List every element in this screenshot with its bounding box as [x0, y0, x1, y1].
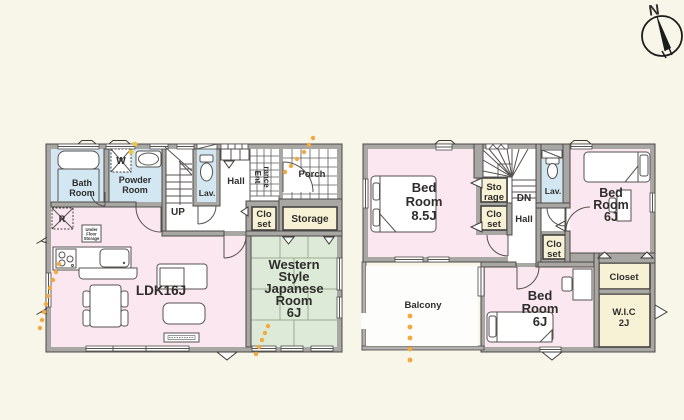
svg-text:6J: 6J	[533, 314, 547, 329]
svg-text:Bath: Bath	[72, 178, 92, 188]
svg-text:Powder: Powder	[119, 175, 152, 185]
svg-text:Hall: Hall	[515, 214, 532, 225]
svg-text:LDK16J: LDK16J	[136, 283, 186, 298]
svg-text:2J: 2J	[619, 318, 630, 329]
svg-text:R: R	[59, 214, 66, 224]
svg-text:Lav.: Lav.	[545, 186, 561, 196]
svg-text:Storage: Storage	[291, 214, 329, 225]
svg-text:Closet: Closet	[609, 272, 639, 283]
svg-text:6J: 6J	[287, 305, 301, 320]
svg-text:Lav.: Lav.	[199, 188, 215, 198]
svg-text:Bed: Bed	[412, 180, 437, 195]
svg-text:W: W	[116, 156, 126, 167]
svg-text:Balcony: Balcony	[405, 300, 443, 311]
svg-text:set: set	[547, 249, 562, 260]
svg-text:set: set	[487, 219, 502, 230]
svg-text:Ent: Ent	[253, 171, 262, 184]
svg-text:Room: Room	[406, 194, 443, 209]
svg-text:W.I.C: W.I.C	[612, 307, 635, 318]
svg-text:Room: Room	[122, 185, 148, 195]
svg-text:DN: DN	[517, 193, 531, 204]
svg-text:rage: rage	[484, 192, 504, 203]
svg-text:Storage: Storage	[84, 236, 100, 241]
svg-text:set: set	[257, 219, 272, 230]
svg-text:8.5J: 8.5J	[411, 208, 436, 223]
svg-text:UP: UP	[171, 207, 185, 218]
svg-text:Room: Room	[69, 188, 95, 198]
svg-text:6J: 6J	[604, 210, 618, 224]
svg-text:rance: rance	[262, 166, 271, 188]
svg-text:Porch: Porch	[299, 169, 326, 180]
svg-text:Hall: Hall	[227, 176, 244, 187]
